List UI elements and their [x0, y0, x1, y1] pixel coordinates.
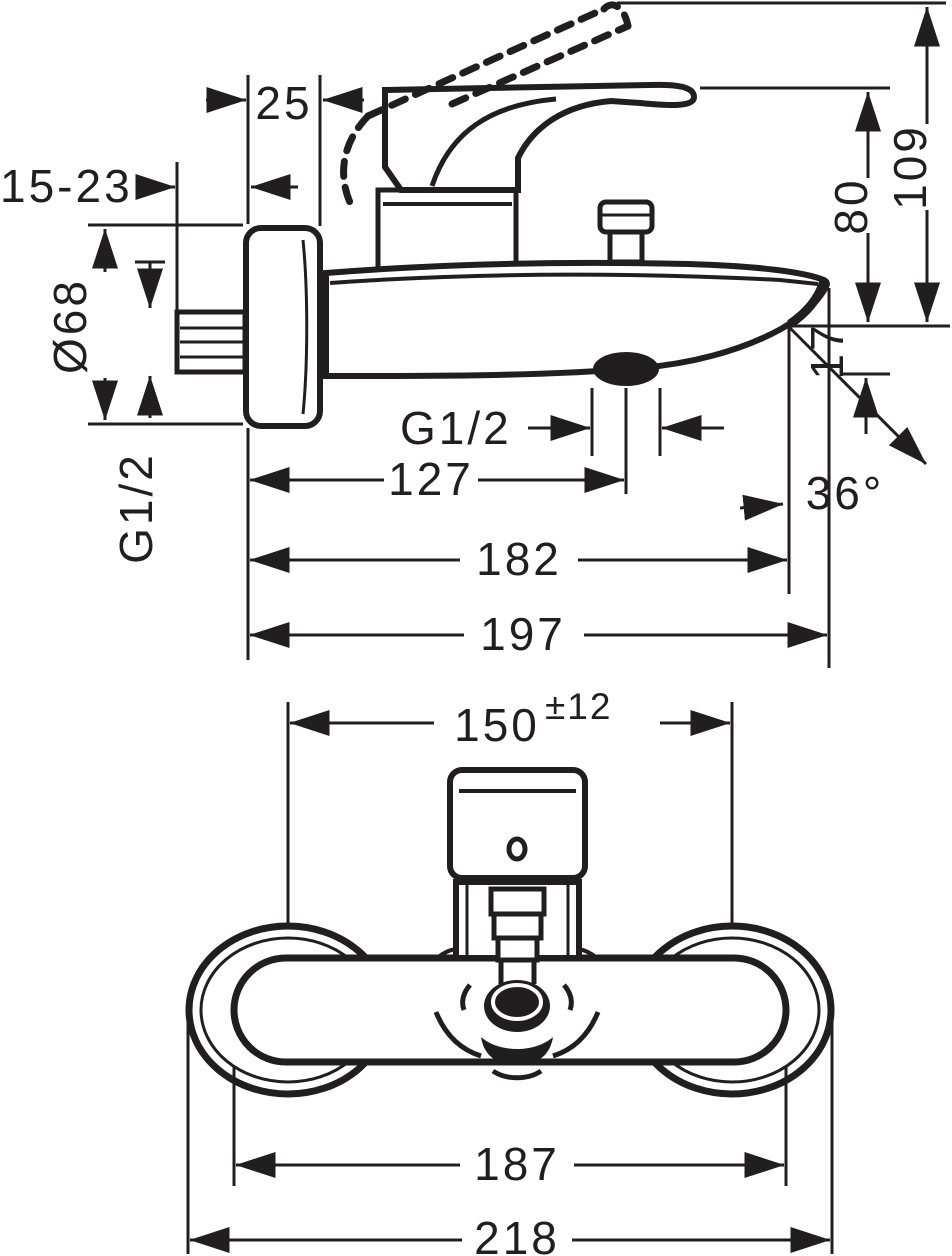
dim-spout-end-offset-label: 17 — [801, 322, 853, 379]
technical-drawing-page: 25 15-23 Ø68 G1/2 80 — [0, 0, 952, 1256]
diverter-stem — [610, 232, 642, 262]
dim-outlet-thread-label: G1/2 — [400, 402, 512, 454]
dim-spout-reach-label: 182 — [476, 533, 562, 585]
stem-step-1 — [491, 889, 544, 914]
dim-spout-to-open-lever-height-label: 109 — [884, 124, 936, 210]
dim-spout-end-offset: 17 — [801, 322, 890, 434]
dim-inlet-thread: G1/2 — [110, 262, 165, 564]
diverter-knob — [600, 202, 652, 232]
arrow — [740, 504, 783, 508]
bath-mixer-dimensional-drawing: 25 15-23 Ø68 G1/2 80 — [0, 0, 952, 1256]
dim-overall-width-label: 218 — [474, 1212, 560, 1256]
dim-concealed-adjustment-label: 15-23 — [0, 160, 133, 212]
dim-total-projection-label: 197 — [480, 608, 566, 660]
handle-knob-front — [450, 770, 585, 878]
dim-outlet-distance: 127 — [250, 453, 624, 505]
front-view-drawing — [189, 770, 831, 1094]
dim-spout-to-lever-height-label: 80 — [825, 177, 877, 234]
dim-inlet-thread-label: G1/2 — [110, 452, 162, 564]
extension-line — [592, 388, 660, 494]
angle-line — [789, 327, 926, 464]
front-view: 150 ±12 187 218 — [188, 686, 832, 1256]
escutcheon-side — [246, 228, 320, 426]
stem-step-3 — [498, 938, 537, 960]
dim-body-width-label: 187 — [474, 1138, 560, 1190]
dim-inlet-spacing-tolerance-label: ±12 — [545, 686, 612, 727]
spout-outlet-aerator — [593, 352, 659, 386]
diverter-front-arc — [493, 1071, 541, 1078]
dim-escutcheon-depth: 25 — [206, 75, 364, 226]
dim-escutcheon-diameter-label: Ø68 — [44, 278, 96, 374]
dim-spout-angle-label: 36° — [806, 467, 885, 519]
dim-outlet-distance-label: 127 — [388, 453, 474, 505]
stem-step-2 — [494, 914, 541, 938]
handle-pin-hole — [509, 839, 525, 859]
dim-inlet-spacing-label: 150 — [454, 699, 540, 751]
side-view: 25 15-23 Ø68 G1/2 80 — [0, 3, 950, 668]
dim-escutcheon-depth-label: 25 — [255, 77, 312, 129]
